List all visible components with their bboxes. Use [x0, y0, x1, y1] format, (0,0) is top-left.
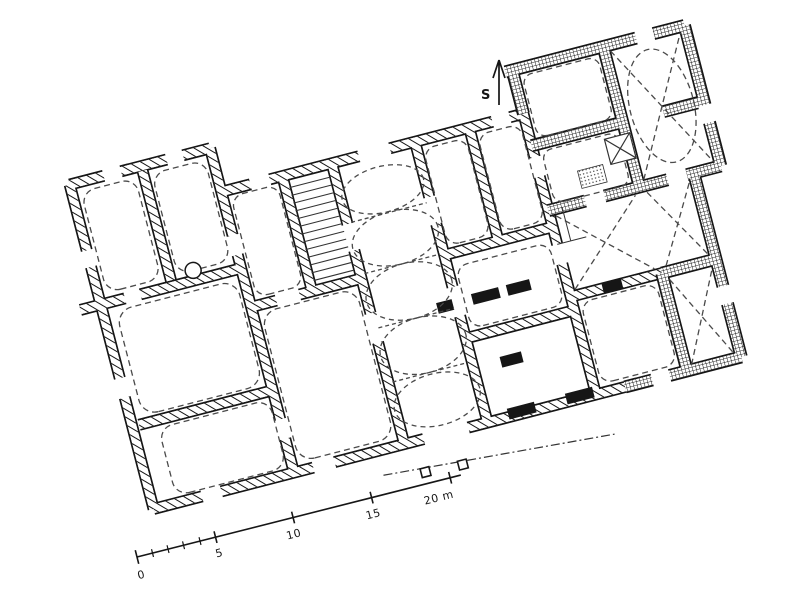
- corridor-barrel-vaults: [335, 156, 487, 436]
- shaft-square: [604, 133, 636, 165]
- north-label: S: [481, 88, 490, 103]
- scale-tick-label-0: 0: [136, 568, 146, 582]
- porch-columns: [383, 417, 614, 493]
- scale-tick-label-15: 15: [364, 506, 382, 522]
- north-arrow: S: [481, 60, 505, 105]
- scale-major-ticks: [135, 471, 452, 564]
- dotted-feature: [577, 164, 607, 188]
- scale-tick-label-5: 5: [214, 546, 224, 560]
- scale-tick-label-10: 10: [285, 526, 303, 542]
- scale-line: [137, 475, 461, 557]
- north-arrow-icon: [493, 60, 505, 105]
- scale-bar: 0 5 10 15 20 m: [131, 468, 467, 582]
- floor-plan-canvas: S 0 5 10 15 20 m: [0, 0, 800, 600]
- building-plan: [49, 26, 779, 556]
- scale-end-label: 20 m: [423, 488, 455, 508]
- scanned-plan-page: S 0 5 10 15 20 m: [0, 0, 800, 600]
- vault-details: [80, 33, 761, 502]
